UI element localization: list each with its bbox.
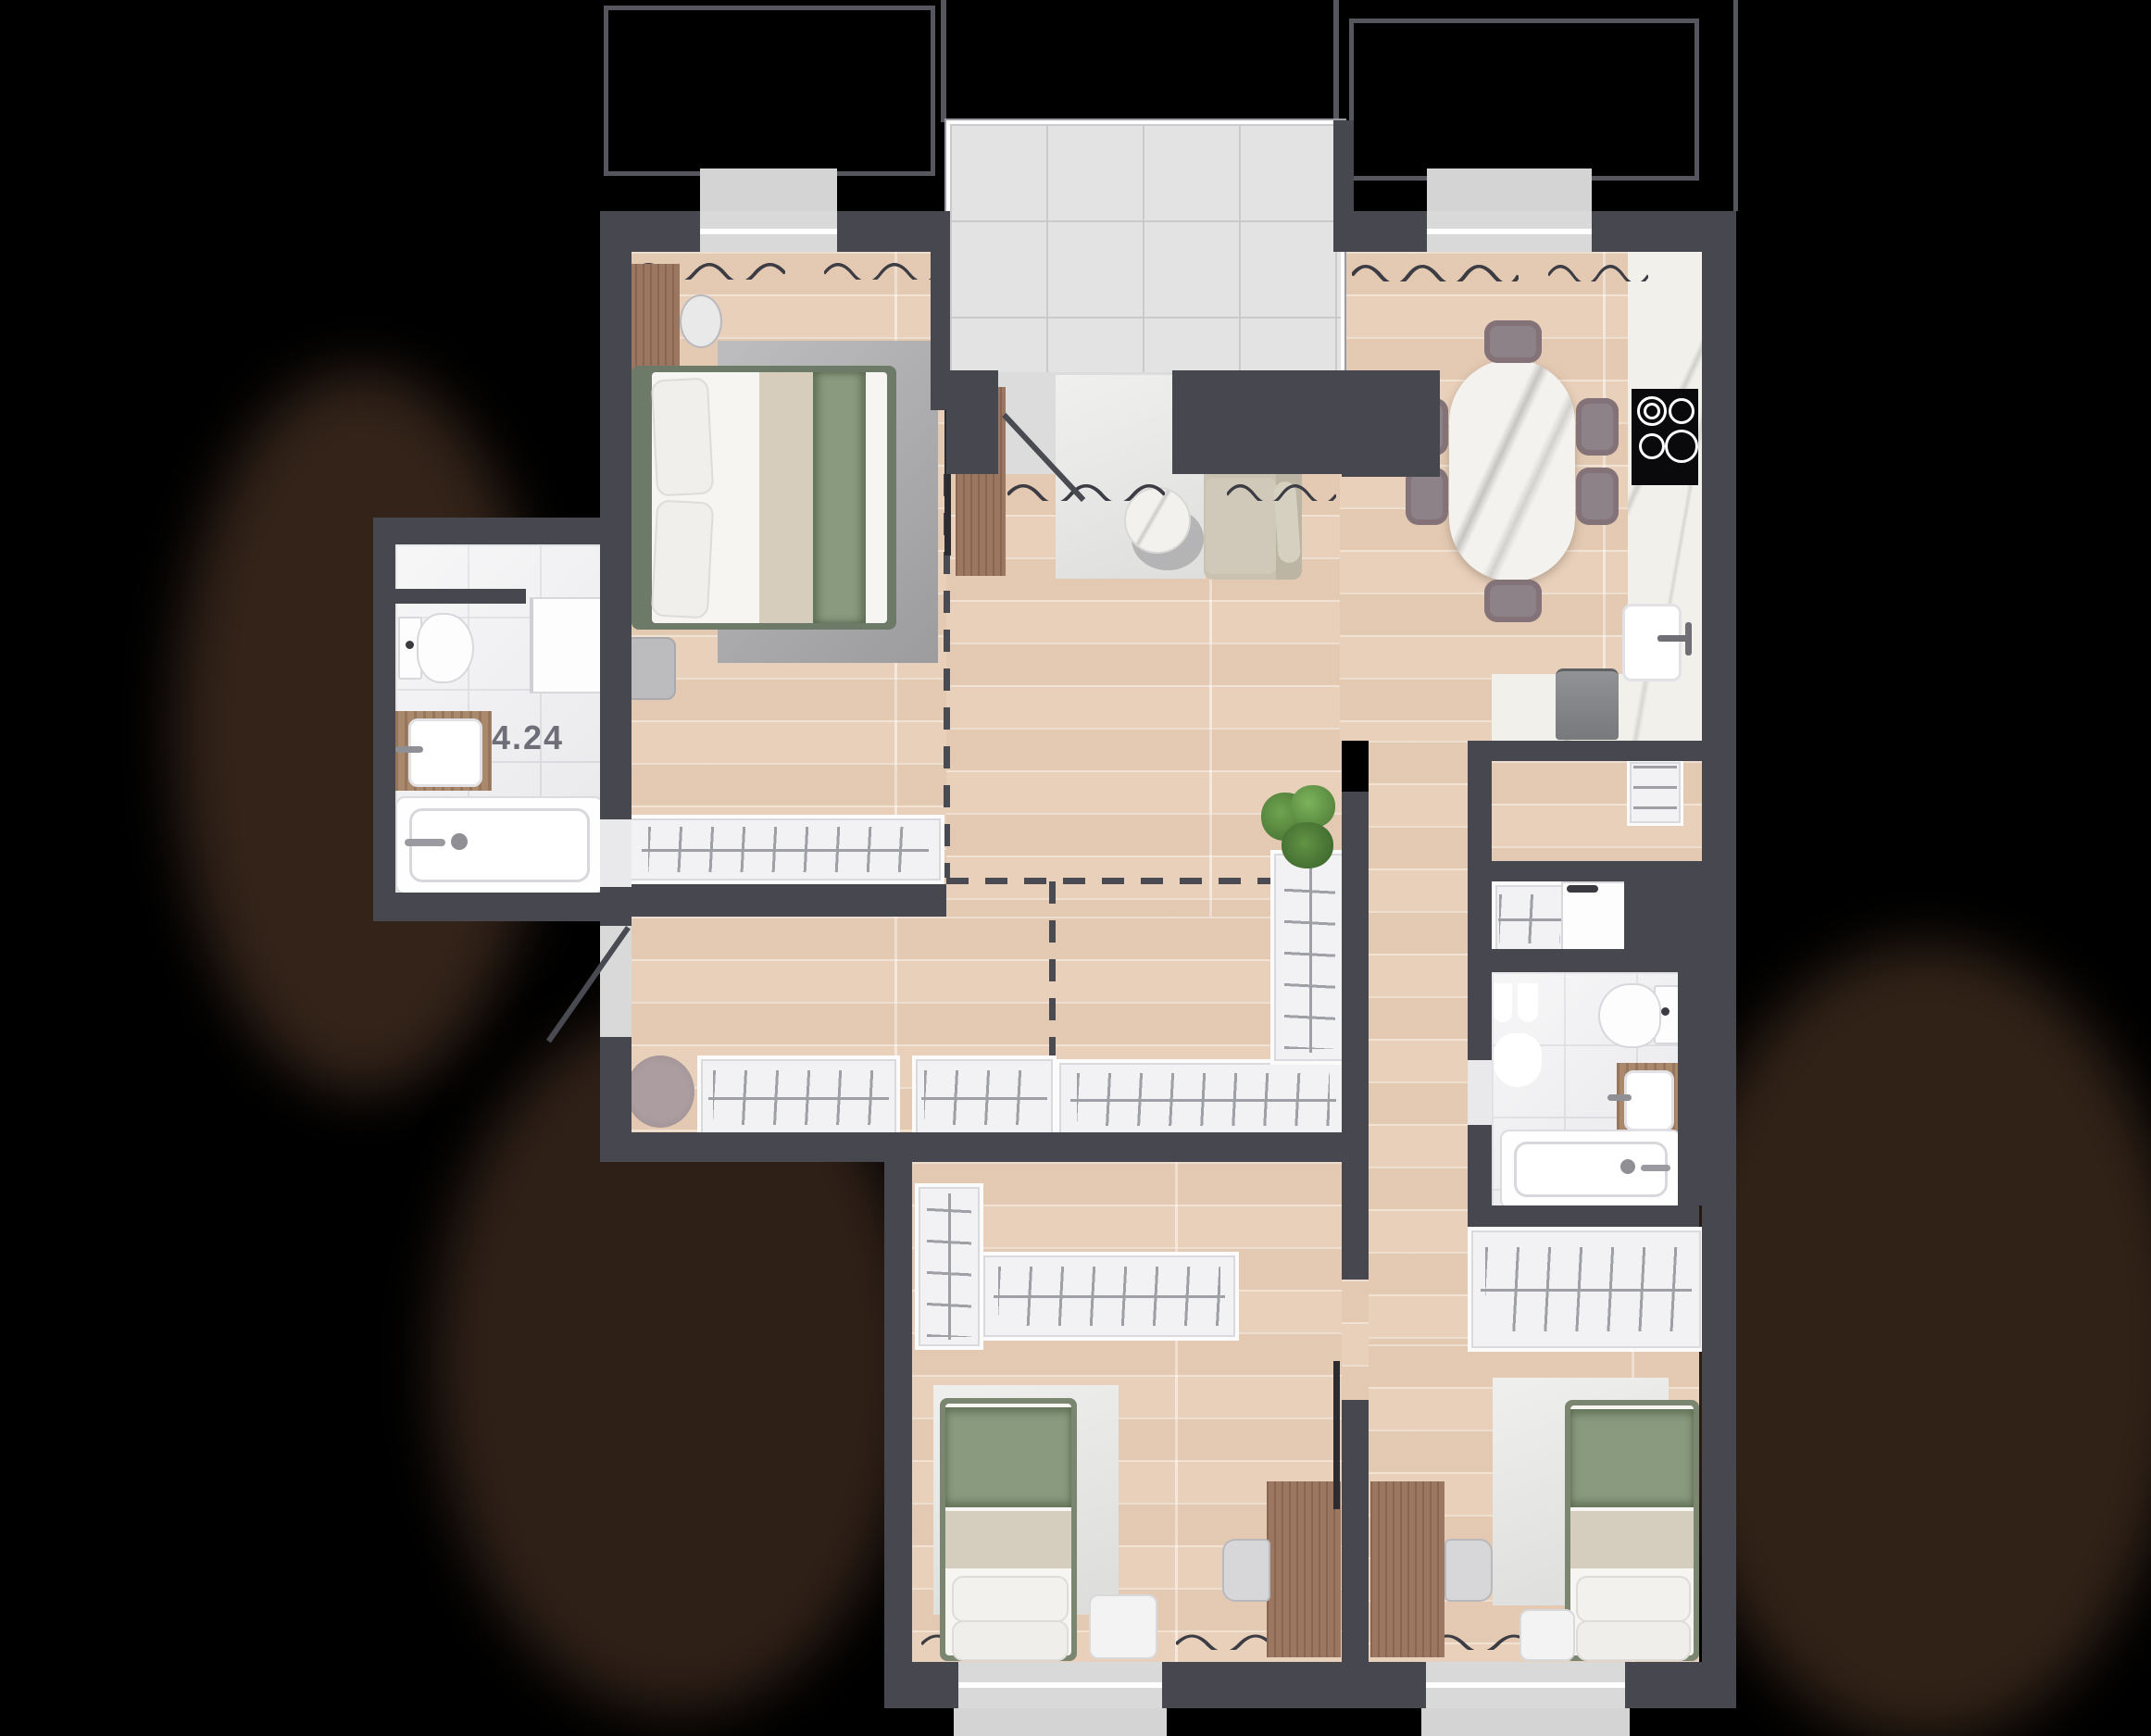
wall [884,1162,912,1662]
wardrobe-icon [697,1055,900,1140]
wall [1468,1205,1699,1227]
floor-plan: 4.24 [0,0,2151,1736]
sink-icon [1624,1070,1674,1131]
bathtub-icon [395,796,604,894]
wardrobe-icon [980,1252,1239,1341]
desk-chair [680,294,722,348]
radiator-icon [1007,477,1165,501]
nightstand [1519,1609,1575,1661]
wall [600,1132,1369,1162]
fridge-icon [1556,668,1619,740]
wall [1492,949,1702,972]
balcony-floor [950,124,1341,376]
wall [1492,741,1702,761]
bedroom2-door-floor [1342,1280,1369,1400]
wall [1702,211,1736,1662]
dining-chair [1484,580,1542,622]
wardrobe-icon [1492,881,1568,956]
wall [1333,120,1354,252]
wall [1468,741,1492,972]
wall [1492,861,1624,881]
corridor-floor [1369,741,1468,1347]
wall [1172,370,1342,474]
balcony-rail-line-right [1333,0,1339,122]
wall [600,884,946,917]
desk-chair [1222,1539,1270,1602]
wall [1468,1125,1492,1205]
wall [835,211,946,252]
window-sill [954,1708,1167,1736]
burner-icon [1665,430,1698,463]
burner-icon [1639,433,1665,459]
neighbor-balcony-outline-right [1349,19,1699,181]
wardrobe-icon [1056,1059,1351,1140]
burner-icon [1637,396,1667,426]
wardrobe-icon [626,815,944,884]
bathroom1-door-opening [600,819,632,887]
faucet-icon [1607,1094,1632,1101]
wall [1342,1400,1369,1662]
wall [884,1662,958,1708]
single-bed [940,1398,1077,1661]
bathroom2-door-opening [1468,1060,1492,1125]
wardrobe-icon [912,1055,1057,1140]
balcony [946,120,1344,380]
bathroom-area-label: 4.24 [468,718,588,756]
wall [373,893,632,921]
window-icon [958,1662,1162,1708]
window-icon [1426,1662,1625,1708]
shelf-unit [1627,759,1683,826]
towel-rail-icon [1494,983,1512,1022]
single-bed [1565,1400,1699,1661]
exterior-edge-line [1733,0,1738,211]
wall [1590,211,1702,252]
desk [1267,1481,1341,1657]
radiator-icon [1548,257,1648,281]
wall [600,211,702,252]
bathroom-cabinet [530,597,604,693]
desk-chair [1444,1539,1493,1602]
window-icon [700,211,837,252]
wall [1342,792,1369,1132]
toilet-button [406,641,414,649]
double-bed [632,366,896,630]
wall [373,518,600,544]
wardrobe-icon [1270,850,1349,1065]
wall [373,544,395,921]
wall [600,518,632,819]
radiator-icon [824,256,937,280]
towel-rail-icon [1494,1033,1542,1087]
wall [946,370,998,474]
dining-chair [1484,320,1542,363]
balcony-rail-line-left [941,0,946,122]
window-icon [1427,211,1592,252]
wall [1625,1662,1736,1708]
neighbor-balcony-outline-left [604,6,935,176]
burner-icon [1669,398,1695,424]
toilet-button [1661,1007,1670,1016]
faucet-icon [395,746,423,753]
wall [1342,370,1440,477]
toilet-icon [1598,983,1661,1048]
wall [1342,1162,1369,1280]
desk [1370,1481,1444,1657]
wall [1162,1662,1426,1708]
radiator-icon [1227,477,1336,501]
kitchen-sink-icon [1622,604,1682,681]
bedside-stool [624,637,676,700]
radiator-icon [1352,257,1519,281]
wardrobe-icon [1468,1227,1705,1352]
window-sill [1421,1708,1630,1736]
dining-chair [1576,398,1619,456]
window-sill [700,169,837,211]
towel-rail-icon [1518,983,1538,1022]
wall [1678,972,1702,1205]
tv-icon [1333,1361,1340,1509]
wardrobe-icon [915,1183,983,1350]
wall [1468,972,1492,1060]
shadow-blob-bottom-right [1667,944,2151,1736]
shower-stub-wall [395,589,526,604]
faucet-icon [1685,622,1692,656]
wall [600,252,632,518]
toilet-icon [417,613,474,683]
window-sill [1427,169,1592,211]
entry-rug [626,1055,694,1128]
nightstand [1089,1594,1157,1659]
bathtub-icon [1500,1130,1682,1209]
washing-machine-icon [1561,881,1628,953]
dining-chair [1576,468,1619,525]
plant-icon [1256,783,1341,870]
dining-table-icon [1449,359,1575,581]
